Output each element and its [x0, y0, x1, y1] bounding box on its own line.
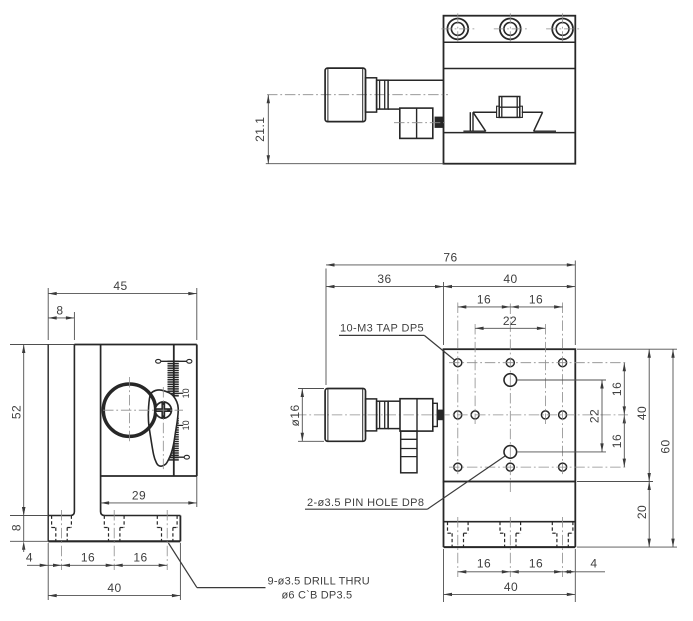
svg-text:16: 16 — [529, 557, 543, 571]
svg-text:16: 16 — [610, 434, 624, 448]
svg-text:29: 29 — [132, 489, 146, 503]
svg-text:40: 40 — [503, 272, 517, 286]
svg-text:40: 40 — [504, 580, 518, 594]
svg-text:36: 36 — [377, 272, 391, 286]
svg-text:16: 16 — [610, 382, 624, 396]
svg-text:ø16: ø16 — [288, 404, 302, 426]
svg-text:16: 16 — [133, 550, 147, 564]
svg-text:8: 8 — [56, 304, 63, 318]
svg-text:10: 10 — [181, 420, 191, 430]
svg-text:2-ø3.5 PIN HOLE DP8: 2-ø3.5 PIN HOLE DP8 — [307, 497, 424, 509]
svg-text:20: 20 — [635, 505, 649, 519]
svg-text:40: 40 — [635, 406, 649, 420]
svg-text:ø6 C`B DP3.5: ø6 C`B DP3.5 — [282, 590, 353, 602]
svg-text:16: 16 — [477, 293, 491, 307]
svg-text:60: 60 — [659, 439, 673, 453]
svg-text:10: 10 — [181, 388, 191, 398]
svg-text:16: 16 — [529, 293, 543, 307]
svg-text:40: 40 — [107, 581, 121, 595]
svg-text:22: 22 — [588, 409, 602, 423]
svg-text:9-ø3.5 DRILL THRU: 9-ø3.5 DRILL THRU — [268, 575, 370, 587]
svg-text:45: 45 — [113, 279, 127, 293]
svg-text:8: 8 — [9, 524, 23, 531]
svg-text:76: 76 — [443, 251, 457, 265]
svg-text:4: 4 — [26, 550, 33, 564]
svg-text:4: 4 — [590, 557, 597, 571]
svg-text:22: 22 — [503, 314, 517, 328]
svg-text:10-M3 TAP DP5: 10-M3 TAP DP5 — [340, 323, 424, 335]
svg-text:52: 52 — [9, 405, 23, 419]
svg-text:16: 16 — [81, 550, 95, 564]
svg-text:21.1: 21.1 — [253, 117, 267, 142]
svg-text:16: 16 — [477, 557, 491, 571]
